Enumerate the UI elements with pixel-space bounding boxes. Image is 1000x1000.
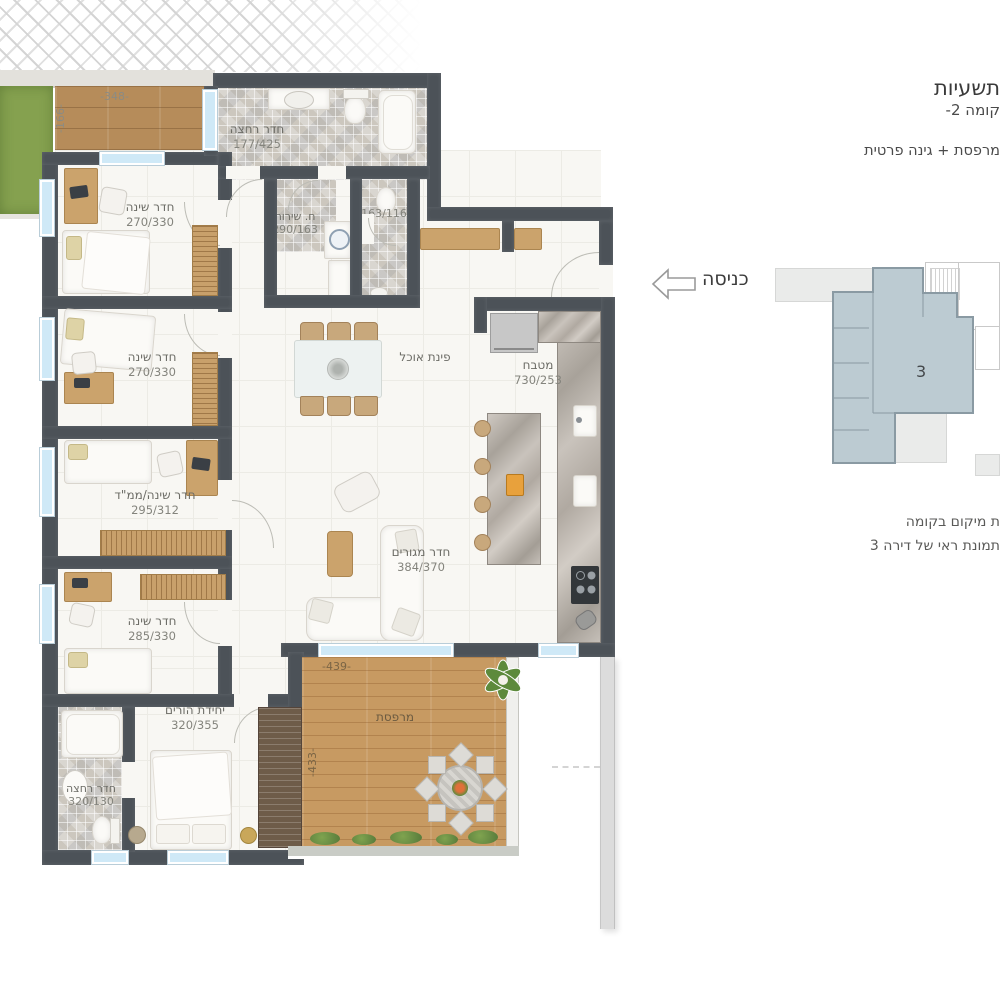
deck-height-dim: -166- xyxy=(54,104,67,133)
wall xyxy=(502,221,514,252)
cutting-board xyxy=(506,474,524,496)
bedroom1-label: חדר שינה 270/330 xyxy=(110,200,190,229)
bar-stool xyxy=(474,496,491,513)
dining-chair xyxy=(354,322,378,342)
minimap: 3 xyxy=(768,256,1000,484)
upper-deck xyxy=(55,86,207,152)
pillow xyxy=(66,236,82,260)
pillow xyxy=(192,824,226,844)
sink-basin xyxy=(284,91,314,109)
toilet xyxy=(344,96,366,124)
wall xyxy=(474,297,613,311)
laptop xyxy=(74,378,90,388)
shrub xyxy=(310,832,340,845)
outdoor-chair xyxy=(476,756,494,774)
door-gap xyxy=(218,480,232,530)
hatch-fade xyxy=(250,0,440,72)
outdoor-chair xyxy=(428,756,446,774)
window xyxy=(40,585,54,643)
wall xyxy=(42,556,232,569)
entrance-gap xyxy=(599,265,613,297)
balcony-width-dim: -439- xyxy=(322,660,351,673)
coffee-table xyxy=(327,531,353,577)
boundary-dashed-line xyxy=(552,766,600,768)
pillow xyxy=(68,444,88,460)
table-centerpiece xyxy=(327,358,349,380)
washer-drum xyxy=(329,229,350,250)
kitchen-counter-top xyxy=(538,311,601,343)
door-gap xyxy=(226,166,260,179)
entrance-label: כניסה xyxy=(702,268,749,290)
floorplan-canvas: -348- -166- חדר רחצה 177/425 ח. שירות 29… xyxy=(0,0,1000,1000)
dining-chair xyxy=(327,322,351,342)
deck-width-dim: -348- xyxy=(100,90,129,103)
laptop xyxy=(69,185,88,199)
desk-chair xyxy=(71,351,97,375)
pillow xyxy=(156,824,190,844)
balcony-railing xyxy=(288,846,519,859)
living-label: חדר מגורים 384/370 xyxy=(376,545,466,574)
toilet-tank xyxy=(110,818,120,844)
wall xyxy=(264,295,420,308)
wall xyxy=(350,179,362,308)
wall xyxy=(42,296,232,309)
wall xyxy=(451,643,541,657)
dining-chair xyxy=(327,396,351,416)
refrigerator xyxy=(490,313,538,353)
potted-plant xyxy=(478,656,528,704)
balcony-label: מרפסת xyxy=(360,710,430,725)
wardrobe xyxy=(140,574,226,600)
minimap-caption-line1: ת מיקום בקומה xyxy=(906,514,1000,530)
wall xyxy=(599,221,613,265)
toilet xyxy=(92,816,112,844)
flower-centerpiece xyxy=(452,780,468,796)
shrub xyxy=(436,834,458,845)
window xyxy=(40,448,54,516)
minimap-unit-number: 3 xyxy=(916,362,926,381)
fridge-handle xyxy=(494,348,534,350)
bar-stool xyxy=(474,458,491,475)
outdoor-chair xyxy=(476,804,494,822)
desk-chair xyxy=(68,602,96,629)
entry-bench xyxy=(514,228,542,250)
bar-stool xyxy=(474,534,491,551)
parents-label: יחידת הורים 320/355 xyxy=(150,703,240,732)
bathroom-top-label: חדר רחצה 177/425 xyxy=(222,122,292,151)
wall xyxy=(427,73,441,221)
outdoor-chair xyxy=(428,804,446,822)
wardrobe xyxy=(192,225,218,296)
entry-bench xyxy=(420,228,500,250)
bar-stool xyxy=(474,420,491,437)
duvet xyxy=(81,231,151,295)
balcony-height-dim: -433- xyxy=(306,748,319,777)
window xyxy=(168,851,228,864)
minimap-unit-shape xyxy=(825,258,985,473)
wall xyxy=(474,297,487,333)
shrub xyxy=(390,831,422,844)
window xyxy=(539,644,578,657)
dining-chair xyxy=(300,396,324,416)
minimap-caption-line2: תמונת ראי של דירה 3 xyxy=(870,538,1000,554)
wall xyxy=(576,643,615,657)
laptop xyxy=(72,578,88,588)
wall xyxy=(264,179,277,308)
door-gap xyxy=(318,166,346,179)
entrance-arrow-icon xyxy=(650,266,698,302)
window xyxy=(40,180,54,236)
wardrobe xyxy=(192,352,218,426)
dining-label: פינת אוכל xyxy=(390,350,460,365)
duvet xyxy=(152,751,232,820)
kitchen-sink xyxy=(573,475,597,507)
wall xyxy=(427,207,613,221)
header-floor-line: קומה 2- xyxy=(946,101,1000,119)
desk xyxy=(64,372,114,404)
window xyxy=(100,152,164,165)
wardrobe xyxy=(100,530,226,556)
pillow xyxy=(65,317,85,340)
dining-chair xyxy=(300,322,324,342)
wall xyxy=(601,297,615,657)
pouf xyxy=(128,826,146,844)
mamad-label: חדר שינה/ממ"ד 295/312 xyxy=(100,488,210,517)
burner xyxy=(576,571,585,580)
window xyxy=(203,90,217,150)
faucet xyxy=(576,417,582,423)
shrub xyxy=(352,834,376,845)
window xyxy=(92,851,128,864)
pouf xyxy=(240,827,257,844)
header-feature-line: מרפסת + גינה פרטית xyxy=(864,143,1000,159)
bedroom4-label: חדר שינה 285/330 xyxy=(112,614,192,643)
bedroom2-label: חדר שינה 270/330 xyxy=(112,350,192,379)
toilet-tank xyxy=(343,89,369,99)
wall xyxy=(407,179,420,308)
bathtub-inner xyxy=(383,95,413,150)
sliding-door-window xyxy=(319,644,453,657)
wall xyxy=(42,426,232,439)
kitchen-label: מטבח 730/253 xyxy=(500,358,576,387)
laptop xyxy=(191,457,210,471)
window xyxy=(40,318,54,380)
site-column xyxy=(600,657,615,929)
closet xyxy=(258,707,302,848)
pillow xyxy=(68,652,88,668)
bathroom-bottom-label: חדר רחצה 320/130 xyxy=(60,782,122,809)
door-gap xyxy=(122,762,135,798)
shrub xyxy=(468,830,498,844)
desk-chair xyxy=(156,450,184,478)
wall xyxy=(213,73,441,88)
desk xyxy=(64,572,112,602)
door-gap xyxy=(218,312,232,358)
dining-chair xyxy=(354,396,378,416)
header-project-line: תשעיות xyxy=(934,76,1000,100)
bathtub-inner xyxy=(66,714,120,755)
cooktop xyxy=(571,566,599,604)
door-gap xyxy=(218,600,232,646)
